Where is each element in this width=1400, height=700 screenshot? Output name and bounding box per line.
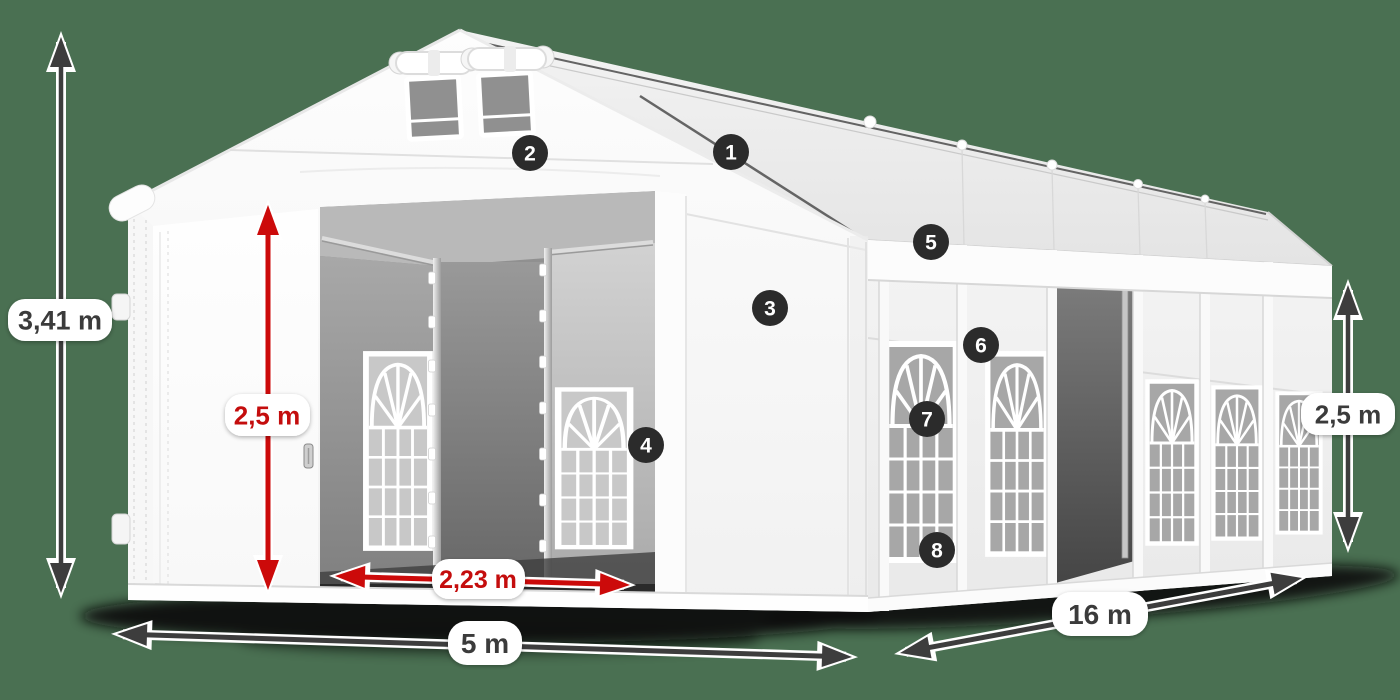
side-window-2: [988, 354, 1046, 554]
side-window-3: [1147, 382, 1196, 544]
front-doorway-interior: [320, 191, 655, 602]
svg-text:8: 8: [931, 540, 943, 563]
label-side-length: 16 m: [1052, 592, 1148, 636]
gable-vent-right: [478, 73, 533, 136]
svg-text:6: 6: [975, 335, 987, 358]
vent-roll-right: [461, 46, 554, 72]
svg-text:3: 3: [764, 298, 776, 321]
label-total-height: 3,41 m: [8, 299, 112, 341]
callout-2: 2: [512, 135, 548, 171]
label-door-width: 2,23 m: [432, 559, 525, 599]
label-side-height: 2,5 m: [1301, 393, 1395, 435]
gable-vent-left: [406, 77, 461, 140]
side-window-4: [1213, 387, 1260, 538]
label-door-height: 2,5 m: [225, 394, 310, 436]
door-height-value: 2,5 m: [234, 400, 301, 430]
interior-window-right: [558, 389, 630, 547]
door-handle: [304, 444, 313, 468]
callout-4: 4: [628, 427, 664, 463]
callout-7: 7: [909, 401, 945, 437]
svg-text:4: 4: [640, 435, 652, 458]
callout-3: 3: [752, 290, 788, 326]
svg-text:5: 5: [925, 232, 937, 255]
side-door-opening: [1050, 258, 1140, 584]
label-front-width: 5 m: [448, 621, 522, 665]
front-door-frame-right: [655, 191, 686, 602]
front-width-value: 5 m: [461, 628, 509, 659]
door-width-value: 2,23 m: [439, 566, 517, 594]
side-height-value: 2,5 m: [1315, 399, 1382, 429]
svg-text:7: 7: [921, 409, 933, 432]
side-length-value: 16 m: [1068, 599, 1132, 630]
side-window-1: [886, 344, 956, 560]
total-height-value: 3,41 m: [18, 306, 102, 336]
svg-text:1: 1: [725, 142, 737, 165]
callout-1: 1: [713, 134, 749, 170]
interior-pole-right: [544, 248, 552, 588]
callout-8: 8: [919, 532, 955, 568]
callout-6: 6: [963, 327, 999, 363]
svg-text:2: 2: [524, 143, 536, 166]
tent-dimension-diagram: 3,41 m 2,5 m 2,23 m 5 m 16 m 2,5 m 1: [0, 0, 1400, 700]
callout-5: 5: [913, 224, 949, 260]
interior-window-left: [366, 354, 430, 548]
